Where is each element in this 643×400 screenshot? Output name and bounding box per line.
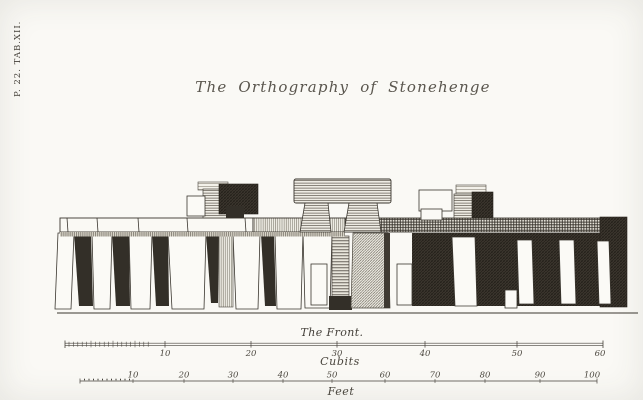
lintel-underside-shading <box>60 232 345 237</box>
scale-bar-feet: 10 20 30 40 50 60 70 80 90 100 Feet <box>80 371 601 399</box>
feet-tick-label: 50 <box>327 371 338 381</box>
feet-tick-label: 80 <box>480 371 491 381</box>
trilithon-tops-left <box>187 182 258 218</box>
book-plate-page: P. 22. TAB.XII. The Orthography of Stone… <box>0 0 643 400</box>
plate-title: The Orthography of Stonehenge <box>195 78 490 96</box>
feet-tick-label: 10 <box>128 371 139 381</box>
elevation-drawing <box>55 179 638 313</box>
sarsen-uprights <box>55 233 332 309</box>
cubits-major-ticks <box>165 341 517 348</box>
feet-tick-label: 70 <box>430 371 441 381</box>
feet-tick-label: 40 <box>277 371 289 381</box>
cubits-label: Cubits <box>320 355 360 368</box>
feet-label: Feet <box>327 385 355 398</box>
feet-tick-label: 90 <box>535 371 546 381</box>
trilithon-tops-right <box>419 185 493 220</box>
plate-reference: P. 22. TAB.XII. <box>13 21 23 97</box>
front-label: The Front. <box>301 326 364 339</box>
cubits-tick-label: 60 <box>595 349 606 359</box>
scale-bar-cubits: 10 20 30 40 50 60 Cubits <box>65 341 606 369</box>
cubits-tick-label: 20 <box>245 349 257 359</box>
cubits-subdivision-ticks <box>69 341 148 348</box>
cubits-tick-label: 40 <box>419 349 431 359</box>
feet-tick-label: 100 <box>584 371 601 381</box>
feet-tick-label: 20 <box>178 371 190 381</box>
cubits-tick-label: 10 <box>160 349 171 359</box>
feet-tick-label: 60 <box>380 371 391 381</box>
feet-subdivision-dots <box>84 379 130 381</box>
cubits-tick-label: 50 <box>512 349 523 359</box>
feet-tick-label: 30 <box>228 371 239 381</box>
stonehenge-plate-engraving: P. 22. TAB.XII. The Orthography of Stone… <box>0 0 643 400</box>
